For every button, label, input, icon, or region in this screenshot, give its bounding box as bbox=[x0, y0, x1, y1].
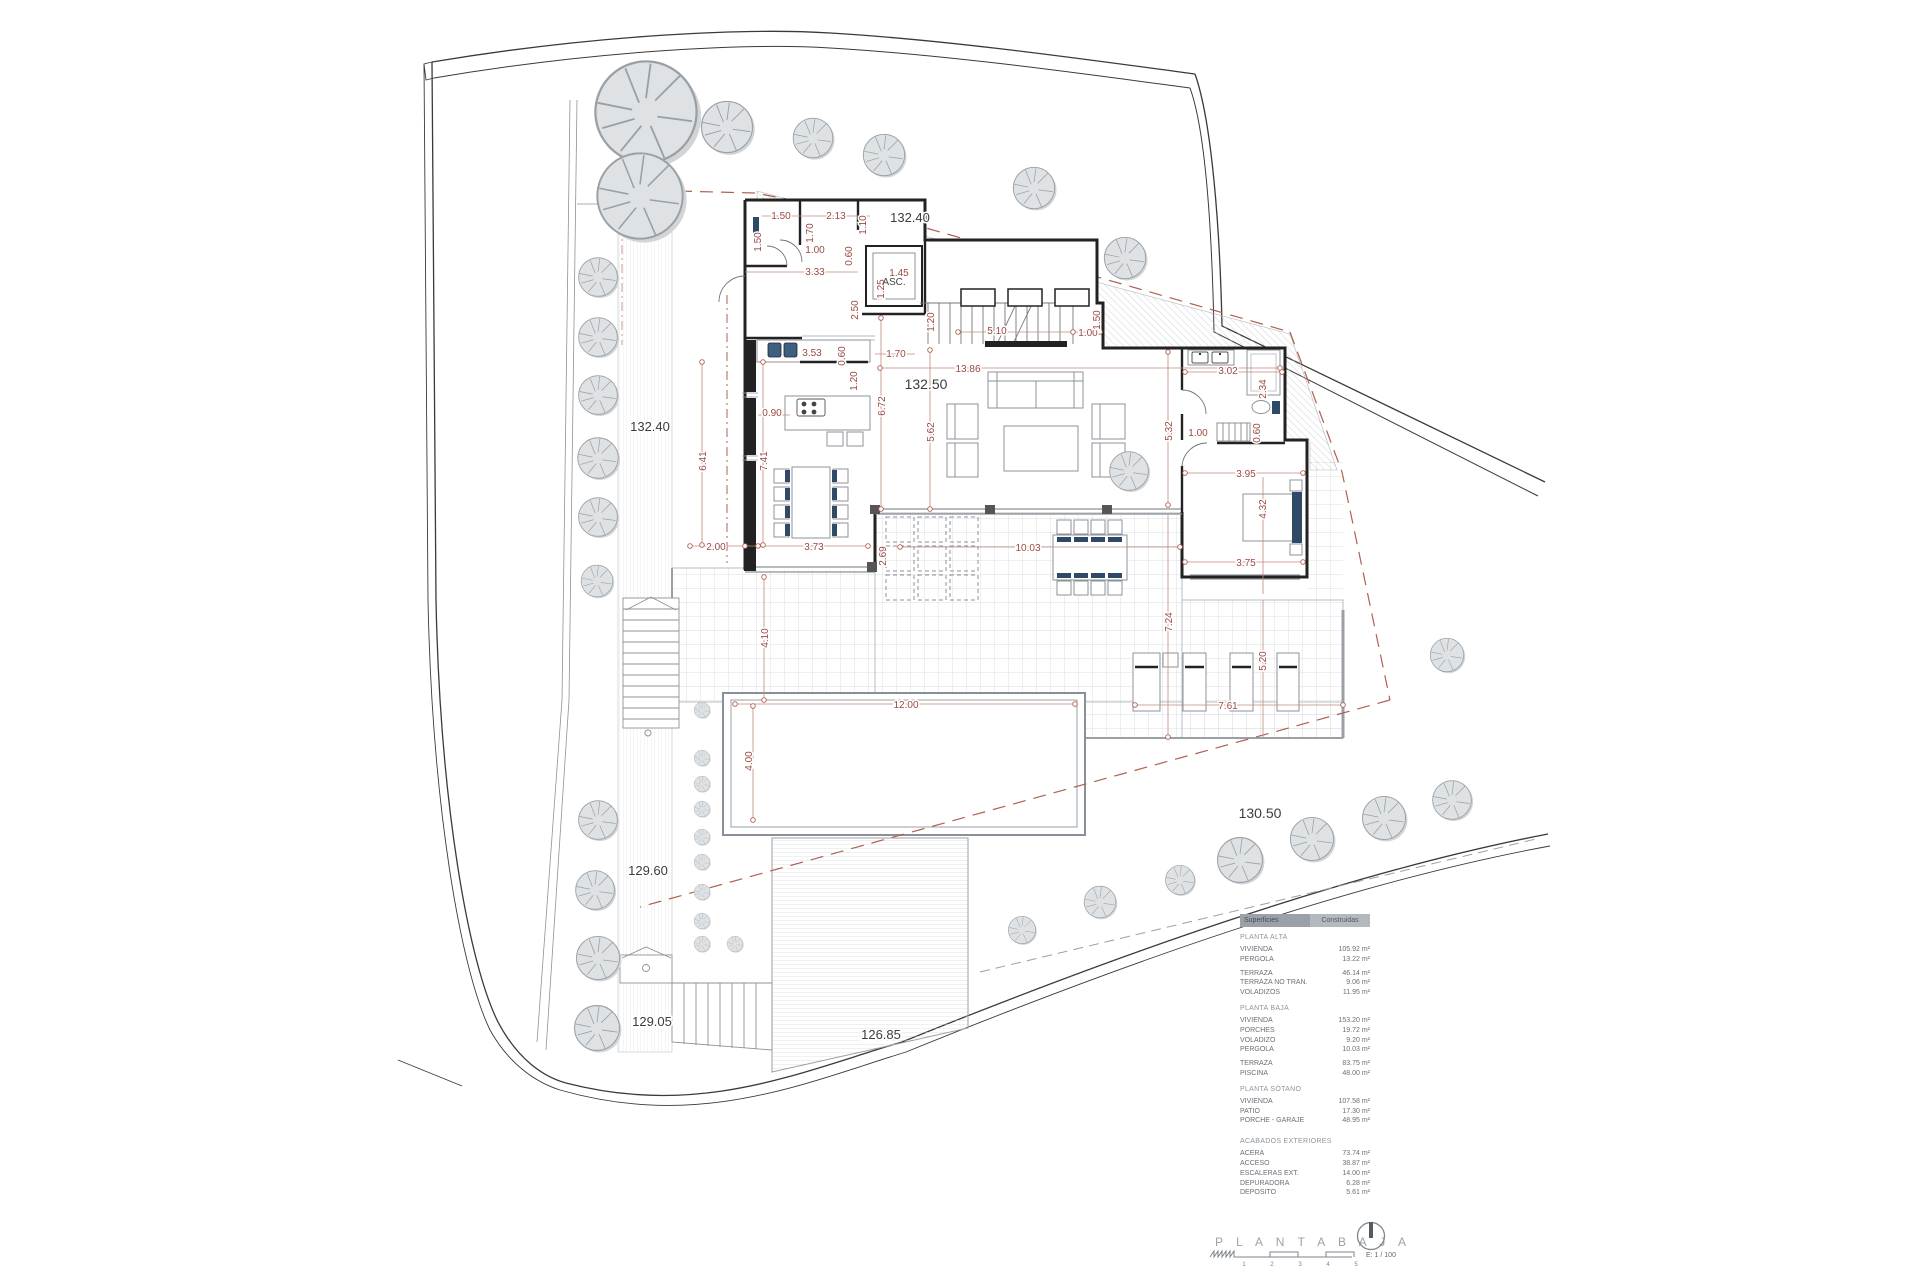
dimension-label: 4.32 bbox=[1258, 499, 1269, 519]
dimension-label: 0.60 bbox=[844, 246, 855, 266]
elevation-label: 129.60 bbox=[628, 863, 668, 878]
table-row: DEPOSITO5.61 m² bbox=[1240, 1188, 1370, 1198]
scale-tick: 3 bbox=[1298, 1262, 1302, 1268]
dimension-label: 4.00 bbox=[744, 751, 755, 771]
table-row: PORCHE - GARAJE48.95 m² bbox=[1240, 1116, 1370, 1126]
dimension-label: 12.00 bbox=[893, 700, 918, 711]
table-row: ACCESO38.87 m² bbox=[1240, 1159, 1370, 1169]
elevation-label: 130.50 bbox=[1239, 805, 1282, 821]
dimension-label: 5.10 bbox=[987, 326, 1007, 337]
scale-tick: 4 bbox=[1326, 1262, 1330, 1268]
dimension-label: 2.69 bbox=[878, 546, 889, 566]
table-row: ACERA73.74 m² bbox=[1240, 1149, 1370, 1159]
table-row: VOLADIZOS11.95 m² bbox=[1240, 988, 1370, 998]
dimension-label: 5.32 bbox=[1164, 421, 1175, 441]
table-row: TERRAZA46.14 m² bbox=[1240, 969, 1370, 979]
scale-label: E: 1 / 100 bbox=[1366, 1252, 1396, 1259]
table-row: PERGOLA13.22 m² bbox=[1240, 955, 1370, 965]
dimension-label: 5.62 bbox=[926, 422, 937, 442]
dimension-label: 2.00 bbox=[706, 542, 726, 553]
table-row: ESCALERAS EXT.14.00 m² bbox=[1240, 1169, 1370, 1179]
dimension-label: 7.24 bbox=[1164, 612, 1175, 632]
site-plan-drawing: 1.50 2.13 1.10 1.50 1.70 1.00 0.60 3.33 … bbox=[0, 0, 1920, 1280]
areas-col-superficies: Superficies bbox=[1240, 914, 1310, 927]
floor-plan-page: 1.50 2.13 1.10 1.50 1.70 1.00 0.60 3.33 … bbox=[0, 0, 1920, 1280]
pool bbox=[723, 693, 1085, 835]
dimension-label: 5.20 bbox=[1258, 651, 1269, 671]
table-row: VIVIENDA107.58 m² bbox=[1240, 1097, 1370, 1107]
areas-col-construidas: Construidas bbox=[1310, 914, 1370, 927]
dimension-label: 1.00 bbox=[1188, 428, 1208, 439]
elevation-label: 132.40 bbox=[630, 419, 670, 434]
dimension-label: 1.50 bbox=[771, 211, 791, 222]
table-row: PATIO17.30 m² bbox=[1240, 1107, 1370, 1117]
dimension-label: 3.73 bbox=[804, 542, 824, 553]
areas-table: Superficies Construidas PLANTA ALTA VIVI… bbox=[1240, 914, 1370, 1198]
dimension-label: 4.10 bbox=[760, 628, 771, 648]
section-title-planta-alta: PLANTA ALTA bbox=[1240, 934, 1370, 941]
dimension-label: 3.53 bbox=[802, 348, 822, 359]
dimension-label: 3.95 bbox=[1236, 469, 1256, 480]
elevation-label: 129.05 bbox=[632, 1014, 672, 1029]
scale-bar: 1 2 3 4 5 bbox=[1206, 1247, 1376, 1269]
dimension-label: 1.70 bbox=[886, 349, 906, 360]
elevation-label: 132.40 bbox=[890, 210, 930, 225]
dimension-label: 6.41 bbox=[698, 451, 709, 471]
table-row: VIVIENDA153.20 m² bbox=[1240, 1016, 1370, 1026]
dimension-label: 1.10 bbox=[858, 215, 869, 235]
dimension-label: 1.50 bbox=[753, 232, 764, 252]
dimension-label: 7.61 bbox=[1218, 701, 1238, 712]
elevation-label: 126.85 bbox=[861, 1027, 901, 1042]
dimension-label: 2.34 bbox=[1258, 379, 1269, 399]
dimension-label: 1.70 bbox=[805, 223, 816, 243]
dimension-label: 0.90 bbox=[762, 408, 782, 419]
dimension-label: 1.20 bbox=[926, 312, 937, 332]
areas-table-header: Superficies Construidas bbox=[1240, 914, 1370, 927]
scale-tick: 5 bbox=[1354, 1262, 1358, 1268]
dimension-label: 3.75 bbox=[1236, 558, 1256, 569]
dimension-label: 2.50 bbox=[850, 300, 861, 320]
table-row: TERRAZA83.75 m² bbox=[1240, 1059, 1370, 1069]
dimension-label: 0.60 bbox=[837, 346, 848, 366]
elevator-label: ASC. bbox=[882, 277, 905, 288]
dimension-label: 2.13 bbox=[826, 211, 846, 222]
scale-tick: 2 bbox=[1270, 1262, 1274, 1268]
dimension-label: 3.02 bbox=[1218, 366, 1238, 377]
dimension-label: 7.41 bbox=[759, 451, 770, 471]
section-title-acabados: ACABADOS EXTERIORES bbox=[1240, 1138, 1370, 1145]
section-title-planta-baja: PLANTA BAJA bbox=[1240, 1005, 1370, 1012]
dimension-label: 0.60 bbox=[1252, 423, 1263, 443]
table-row: PORCHES19.72 m² bbox=[1240, 1026, 1370, 1036]
dimension-label: 1.20 bbox=[849, 371, 860, 391]
dimension-label: 1.50 bbox=[1092, 310, 1103, 330]
dimension-label: 3.33 bbox=[805, 267, 825, 278]
scale-tick: 1 bbox=[1242, 1262, 1246, 1268]
dimension-label: 1.00 bbox=[805, 245, 825, 256]
table-row: PISCINA48.00 m² bbox=[1240, 1069, 1370, 1079]
section-title-planta-sotano: PLANTA SÓTANO bbox=[1240, 1086, 1370, 1093]
corner-post bbox=[867, 562, 877, 572]
dimension-label: 13.86 bbox=[955, 364, 980, 375]
table-row: TERRAZA NO TRAN.9.06 m² bbox=[1240, 978, 1370, 988]
table-row: VIVIENDA105.92 m² bbox=[1240, 945, 1370, 955]
elevation-label: 132.50 bbox=[905, 376, 948, 392]
table-row: DEPURADORA6.28 m² bbox=[1240, 1179, 1370, 1189]
table-row: PERGOLA10.03 m² bbox=[1240, 1045, 1370, 1055]
dimension-label: 6.72 bbox=[877, 396, 888, 416]
dimension-label: 10.03 bbox=[1015, 543, 1040, 554]
table-row: VOLADIZO9.20 m² bbox=[1240, 1036, 1370, 1046]
